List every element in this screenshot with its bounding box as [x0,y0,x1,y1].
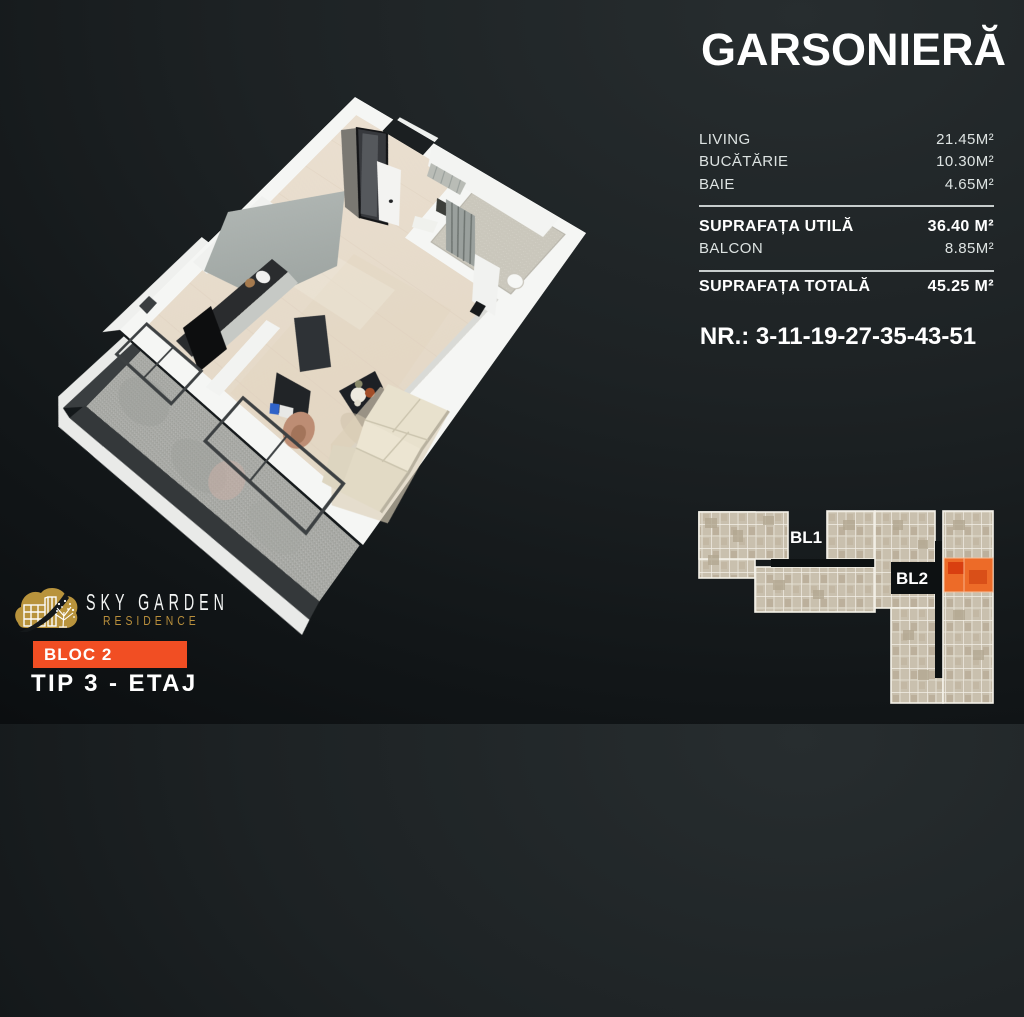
svg-text:BL2: BL2 [896,569,928,588]
svg-text:BL1: BL1 [790,528,822,547]
